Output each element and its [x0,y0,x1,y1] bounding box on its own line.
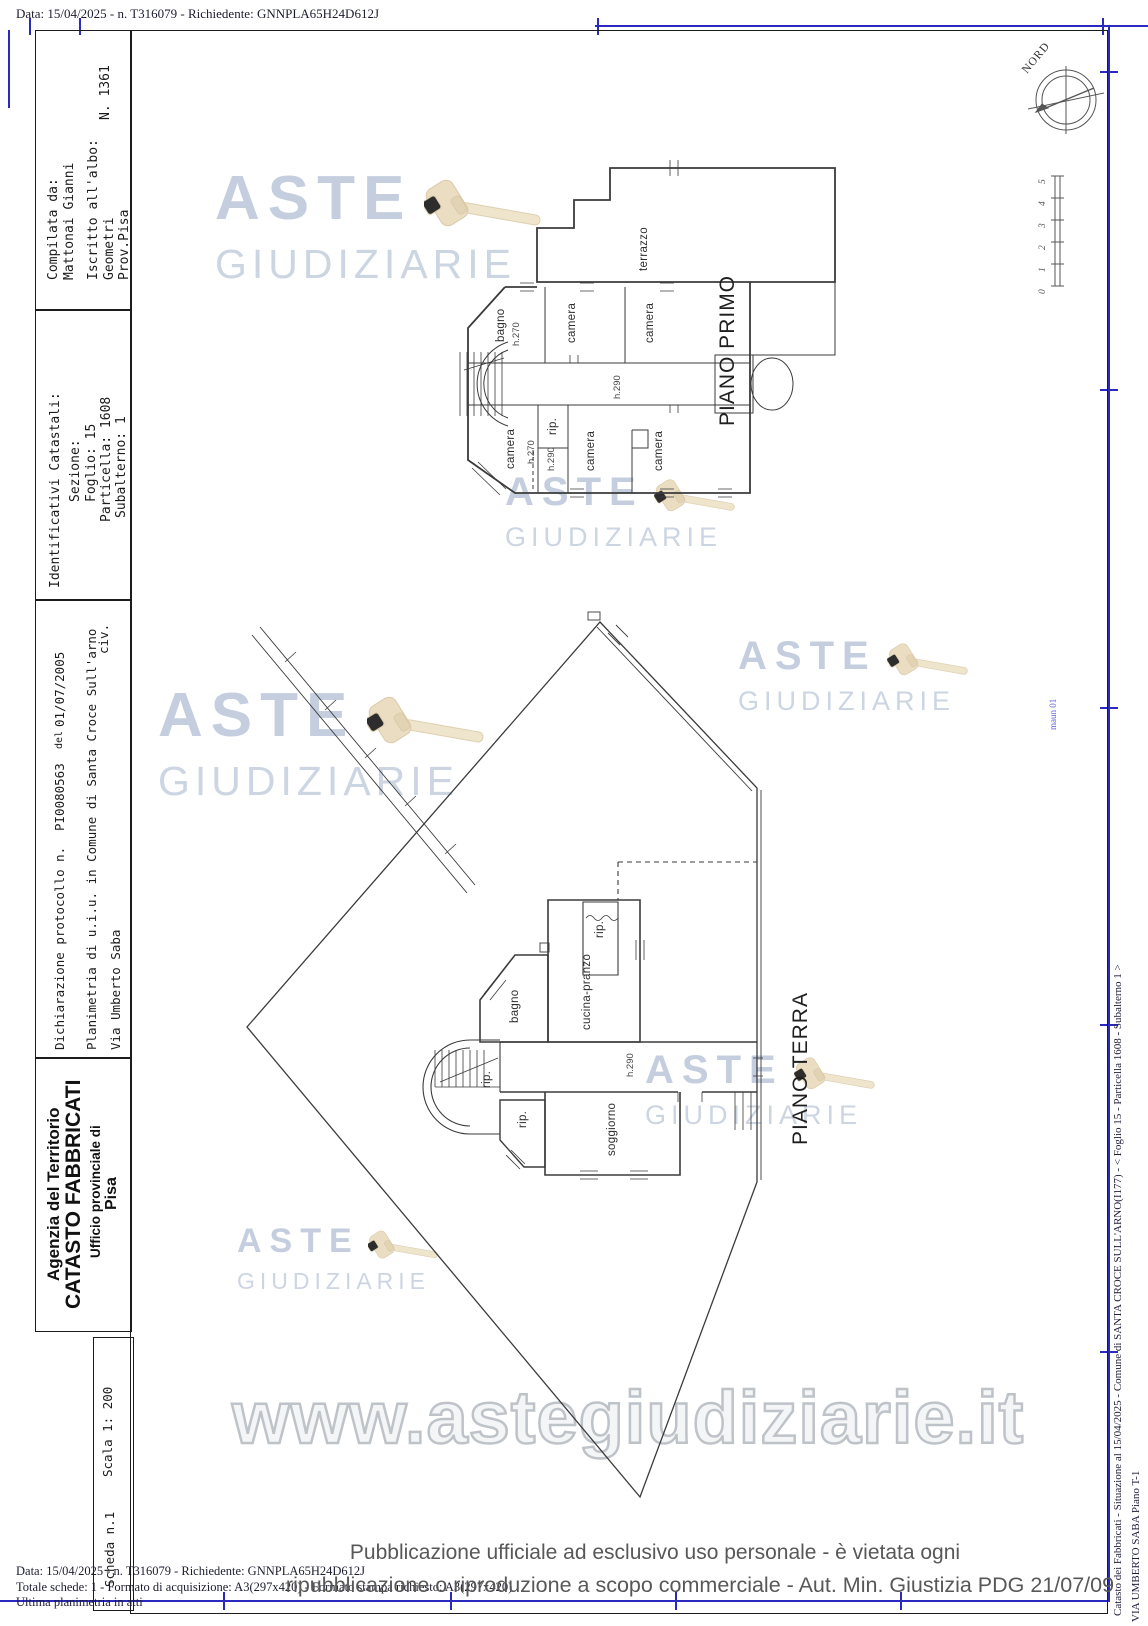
column-divider [35,1057,130,1059]
scale-bar-tick: 5 [1038,170,1048,184]
compiler-albo-label: Iscritto all'albo: [86,140,101,280]
room-height-label: h.290 [612,369,623,399]
declaration-date: 01/07/2005 [52,652,67,727]
room-label-camera: camera [505,427,517,469]
room-label-soggiorno: soggiorno [606,1098,618,1156]
room-label-cucina-pranzo: cucina-pranzo [581,950,593,1030]
publication-notice-line2: ripubblicazione o riproduzione a scopo c… [200,1573,1148,1598]
room-height-label: h.270 [526,436,537,464]
registration-line-top [595,25,1148,27]
agency-line4: Pisa [103,1176,121,1212]
column-divider [35,599,130,601]
room-label-camera: camera [653,429,665,471]
agency-line3: Ufficio provinciale di [88,1130,103,1258]
room-label-camera: camera [566,301,578,343]
catastal-particella: Particella: 1608 [99,402,114,522]
right-margin-note: maun 01 [1048,684,1058,730]
compass-icon [1028,62,1104,138]
declaration-street: Via Umberto Saba [108,928,123,1050]
room-label-bagno: bagno [495,306,507,342]
declaration-line1: Dichiarazione protocollo n.PI0080563del0… [52,638,67,1050]
room-height-label: h.290 [546,443,557,471]
footer-small-line3: Ultima planimetria in atti [16,1595,143,1610]
scale-bar-tick: 2 [1038,236,1048,250]
document-header-line: Data: 15/04/2025 - n. T316079 - Richiede… [16,6,379,22]
publication-notice-line1: Pubblicazione ufficiale ad esclusivo uso… [160,1541,1148,1565]
albo-number: N. 1361 [98,55,113,120]
scale-bar-tick: 0 [1038,280,1048,294]
room-label-rip: rip. [594,916,606,938]
plan-title-piano-terra: PIANO TERRA [789,1033,813,1145]
compiler-prov: Prov.Pisa [117,205,132,280]
registration-tick-left [8,30,10,108]
compiler-name: Mattonai Gianni [62,155,77,280]
catastal-subalterno: Subalterno: 1 [114,414,129,518]
plan-title-piano-primo: PIANO PRIMO [716,288,740,426]
room-label-rip: rip. [517,1106,529,1128]
compiler-albo: Geometri [102,212,117,280]
room-height-label: h.270 [511,318,522,346]
room-label-rip: rip. [547,413,559,435]
agency-line1: Agenzia del Territorio [44,1102,64,1286]
room-label-camera: camera [585,429,597,471]
catastal-title: Identificativi Catastali: [48,345,63,588]
compiler-label: Compilata da: [46,165,61,280]
cadastral-floorplan-sheet: Data: 15/04/2025 - n. T316079 - Richiede… [0,0,1148,1626]
declaration-prefix: Dichiarazione protocollo n. [52,847,67,1050]
registration-tick [29,18,31,35]
room-label-terrazzo: terrazzo [638,219,650,271]
registration-line-right [1108,25,1110,1602]
floor-plan-piano-terra [230,610,790,1510]
catastal-sezione: Sezione: [68,436,83,502]
declaration-protocol: PI0080563 [52,763,67,831]
scale-label: Scala 1: 200 [100,1387,115,1477]
declaration-line2: Planimetria di u.i.u. in Comune di Santa… [84,658,99,1050]
room-label-rip: rip. [481,1066,493,1088]
room-height-label: h.290 [625,1047,636,1077]
right-margin-reference-line: Catasto dei Fabbricati - Situazione al 1… [1112,948,1124,1616]
agency-line2: CATASTO FABBRICATI [62,1076,86,1312]
declaration-civ: civ. [96,612,111,654]
catastal-foglio: Foglio: 15 [84,424,99,502]
scale-bar [1050,174,1066,288]
room-label-camera: camera [644,301,656,343]
scale-bar-tick: 4 [1038,192,1048,206]
column-divider [35,309,130,311]
room-label-bagno: bagno [509,987,521,1023]
scale-bar-tick: 3 [1038,214,1048,228]
declaration-del: del [54,731,65,749]
floor-plan-piano-primo [420,130,850,510]
scale-bar-tick: 1 [1038,258,1048,272]
